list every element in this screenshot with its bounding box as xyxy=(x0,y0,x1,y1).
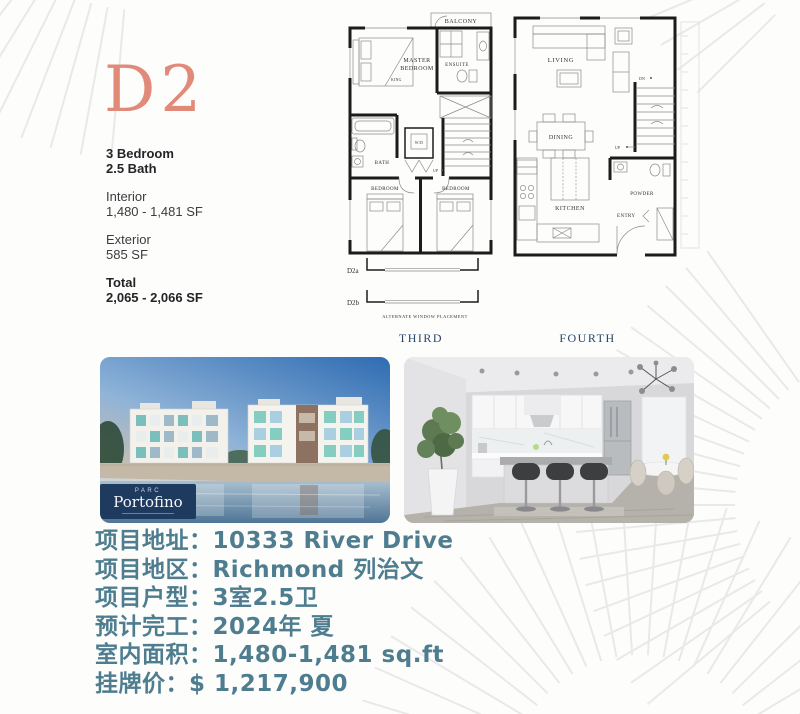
room-label-ensuite: ENSUITE xyxy=(445,63,469,68)
room-label-bedroom-left: BEDROOM xyxy=(371,187,399,192)
spec-total-value: 2,065 - 2,066 SF xyxy=(106,290,203,305)
floor-label-fourth: FOURTH xyxy=(505,331,670,346)
spec-interior-value: 1,480 - 1,481 SF xyxy=(106,204,203,219)
portofino-logo: PARC Portofino xyxy=(100,484,196,519)
room-label-bedroom-right: BEDROOM xyxy=(442,187,470,192)
room-label-master-2: BEDROOM xyxy=(400,66,434,72)
spec-baths: 2.5 Bath xyxy=(106,161,203,176)
listing-address: 项目地址：10333 River Drive xyxy=(95,527,453,556)
variant-label-d2b: D2b xyxy=(347,299,360,307)
spec-total-label: Total xyxy=(106,275,203,290)
stair-up-label-4: UP xyxy=(615,146,620,150)
listing-completion: 预计完工：2024年 夏 xyxy=(95,613,453,642)
room-label-master-1: MASTER xyxy=(403,58,430,64)
stair-up-label: UP xyxy=(433,169,438,173)
plan-name: D2 xyxy=(104,58,206,122)
room-label-balcony: BALCONY xyxy=(445,19,478,25)
portofino-logo-name: Portofino xyxy=(102,494,194,511)
listing-interior-size: 室内面积：1,480-1,481 sq.ft xyxy=(95,641,453,670)
spec-exterior-value: 585 SF xyxy=(106,247,203,262)
room-label-bath: BATH xyxy=(375,161,390,166)
room-label-dining: DINING xyxy=(549,135,573,141)
floorplan-fourth: LIVING DN UP DINING KITCHEN xyxy=(505,10,705,268)
listing-unit-type: 项目户型：3室2.5卫 xyxy=(95,584,453,613)
spec-bedrooms: 3 Bedroom xyxy=(106,146,203,161)
room-label-living: LIVING xyxy=(548,57,575,64)
brochure-page: D2 3 Bedroom 2.5 Bath Interior 1,480 - 1… xyxy=(0,0,800,714)
plan-specs: 3 Bedroom 2.5 Bath Interior 1,480 - 1,48… xyxy=(106,146,203,318)
interior-kitchen-art xyxy=(404,357,694,523)
alternate-window-note: ALTERNATE WINDOW PLACEMENT xyxy=(382,314,468,319)
room-label-entry: ENTRY xyxy=(617,214,635,219)
stair-dn-label: DN xyxy=(639,77,645,81)
spec-interior-label: Interior xyxy=(106,189,203,204)
room-label-kitchen: KITCHEN xyxy=(555,206,585,212)
variant-label-d2a: D2a xyxy=(347,267,360,275)
portofino-logo-tagline-rule xyxy=(122,513,174,514)
floorplan-third: BALCONY KING MASTER BEDROOM ENSUITE xyxy=(345,10,500,332)
listing-price: 挂牌价：$ 1,217,900 xyxy=(95,670,453,699)
exterior-rendering-photo: PARC Portofino xyxy=(100,357,390,523)
closet-wd-label: W/D xyxy=(415,141,423,145)
interior-kitchen-photo xyxy=(404,357,694,523)
spec-exterior-label: Exterior xyxy=(106,232,203,247)
listing-area: 项目地区：Richmond 列治文 xyxy=(95,556,453,585)
bed-size-label: KING xyxy=(391,78,402,82)
room-label-powder: POWDER xyxy=(630,192,654,197)
listing-details: 项目地址：10333 River Drive 项目地区：Richmond 列治文… xyxy=(95,527,453,698)
floor-label-third: THIRD xyxy=(345,331,497,346)
